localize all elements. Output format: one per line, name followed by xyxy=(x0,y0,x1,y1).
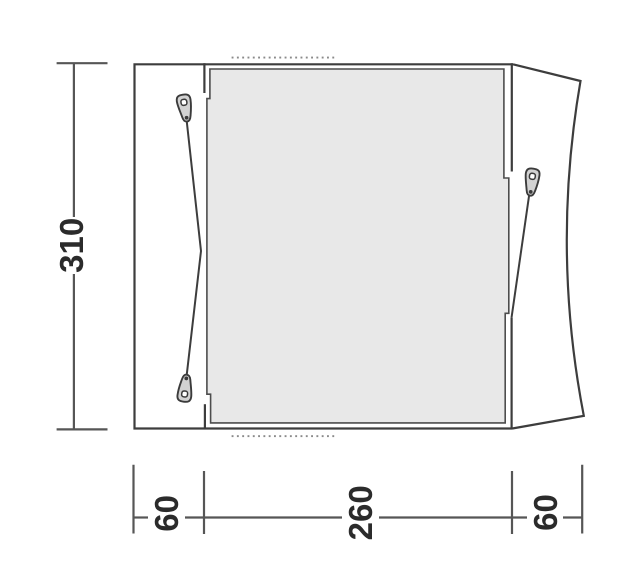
svg-text:60: 60 xyxy=(527,494,564,531)
svg-text:60: 60 xyxy=(148,495,185,532)
svg-text:310: 310 xyxy=(53,218,90,273)
svg-text:260: 260 xyxy=(342,485,379,540)
